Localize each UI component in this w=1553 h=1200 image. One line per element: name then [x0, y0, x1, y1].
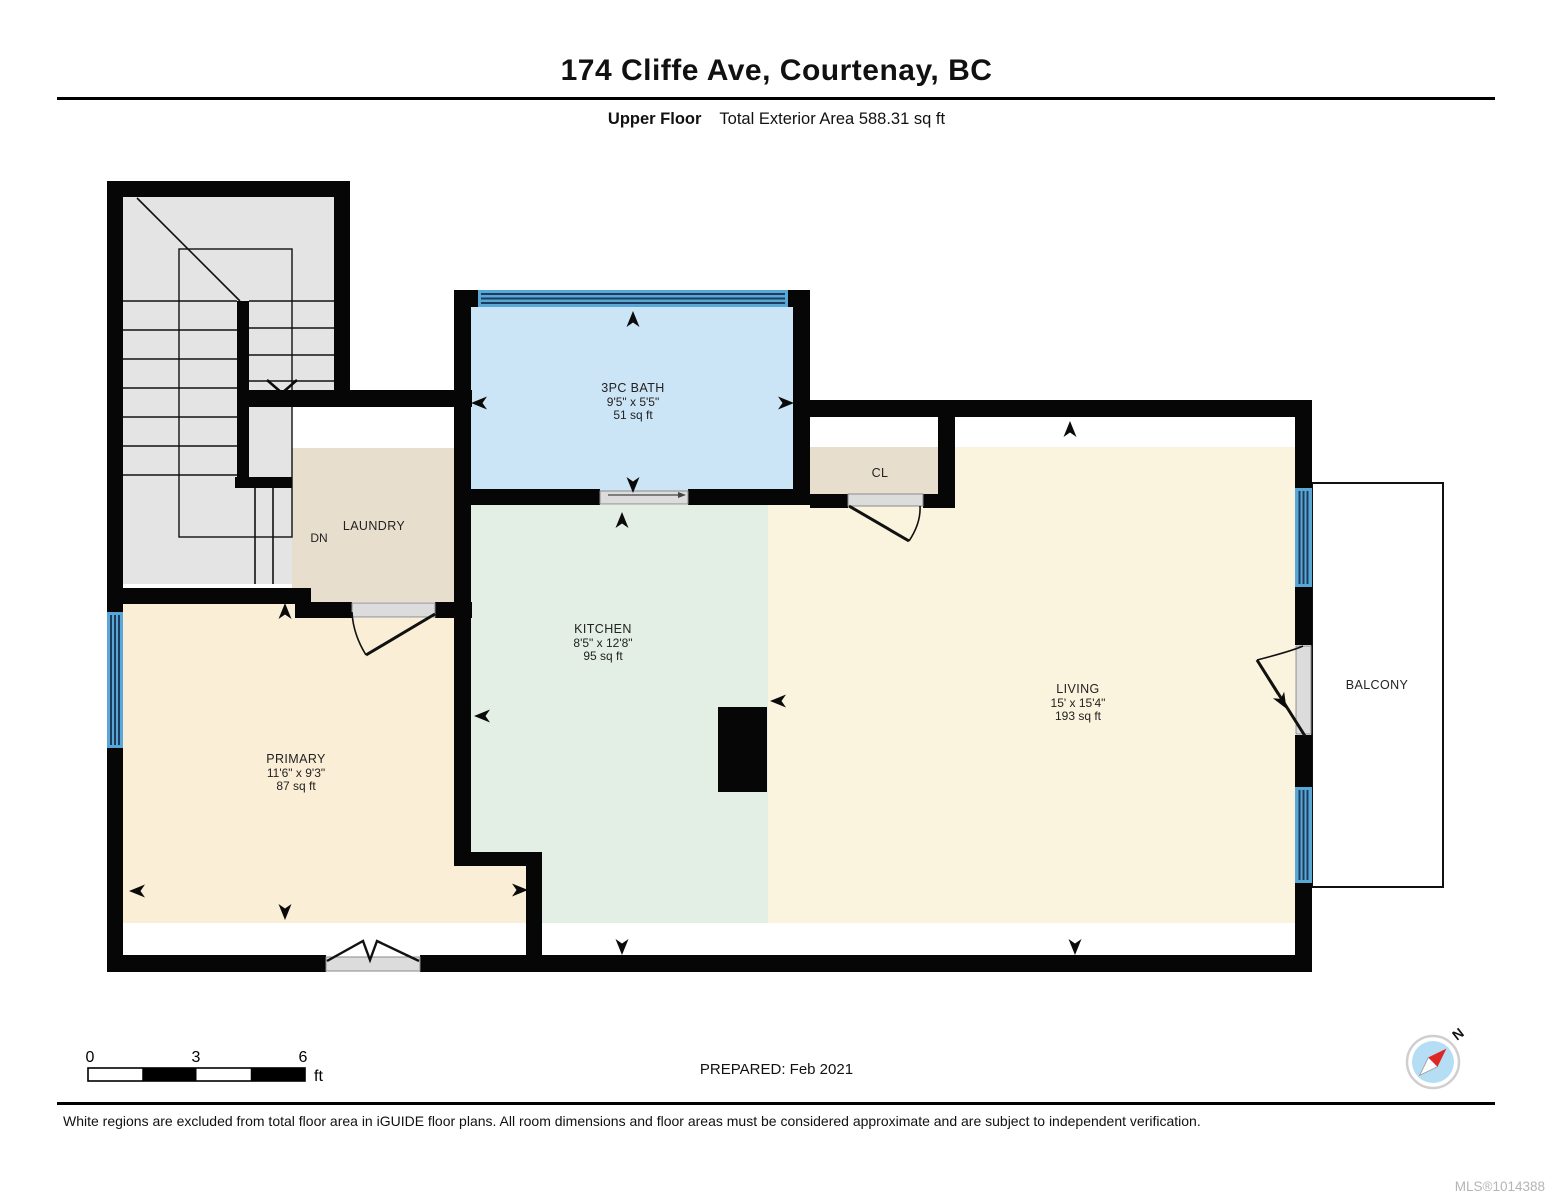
closet-label: CL — [872, 466, 889, 480]
living-label: LIVING — [1056, 682, 1099, 696]
living-window-upper — [1295, 488, 1312, 587]
stairs-dn-label: DN — [310, 531, 327, 545]
primary-label: PRIMARY — [266, 752, 326, 766]
disclaimer-text: White regions are excluded from total fl… — [63, 1113, 1201, 1129]
balcony-label: BALCONY — [1346, 678, 1409, 692]
footer-divider — [57, 1102, 1495, 1105]
bath-label: 3PC BATH — [601, 381, 664, 395]
compass-icon: N — [1407, 1025, 1467, 1088]
kitchen-label: KITCHEN — [574, 622, 632, 636]
bath-area: 51 sq ft — [613, 408, 653, 422]
kitchen-island — [718, 707, 767, 792]
living-area: 193 sq ft — [1055, 709, 1102, 723]
bath-window — [478, 290, 788, 307]
kitchen-dims: 8'5" x 12'8" — [573, 636, 632, 650]
bath-sliding-door — [600, 491, 688, 504]
balcony-door-panel — [1296, 646, 1311, 734]
living-window-lower — [1295, 787, 1312, 883]
floor-plan: 3PC BATH 9'5" x 5'5" 51 sq ft LAUNDRY DN… — [0, 0, 1553, 1200]
primary-area: 87 sq ft — [276, 779, 316, 793]
living-dims: 15' x 15'4" — [1051, 696, 1106, 710]
living-floor — [768, 447, 1295, 923]
primary-window — [107, 612, 123, 748]
laundry-door-sill — [352, 603, 435, 617]
kitchen-area: 95 sq ft — [583, 649, 623, 663]
prepared-date: PREPARED: Feb 2021 — [0, 1061, 1553, 1078]
entry-accordion-sill — [326, 957, 420, 971]
primary-dims: 11'6" x 9'3" — [267, 766, 325, 780]
bath-dims: 9'5" x 5'5" — [607, 395, 659, 409]
mls-number: MLS®1014388 — [1455, 1179, 1545, 1194]
laundry-label: LAUNDRY — [343, 519, 406, 533]
closet-door-sill — [848, 494, 923, 506]
compass-north-label: N — [1449, 1025, 1467, 1044]
